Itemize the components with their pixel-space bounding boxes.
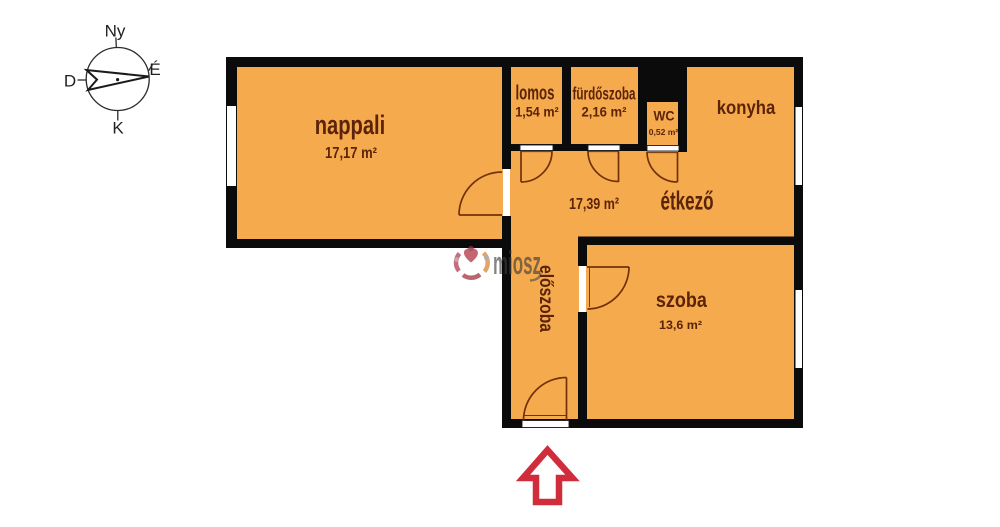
- svg-text:É: É: [149, 60, 160, 79]
- svg-text:0,52 m²: 0,52 m²: [649, 127, 679, 137]
- svg-text:étkező: étkező: [661, 186, 714, 216]
- svg-text:Ny: Ny: [105, 22, 126, 41]
- svg-text:13,6 m²: 13,6 m²: [659, 318, 702, 332]
- svg-text:D: D: [64, 72, 76, 91]
- svg-text:17,17 m²: 17,17 m²: [325, 145, 377, 162]
- svg-text:konyha: konyha: [717, 97, 776, 119]
- svg-text:1,54 m²: 1,54 m²: [515, 105, 559, 120]
- svg-text:fürdőszoba: fürdőszoba: [573, 84, 636, 104]
- svg-text:17,39 m²: 17,39 m²: [569, 196, 619, 213]
- svg-text:nappali: nappali: [315, 110, 386, 140]
- svg-text:miosz: miosz: [493, 245, 541, 281]
- svg-text:K: K: [112, 119, 124, 138]
- svg-text:2,16 m²: 2,16 m²: [582, 105, 627, 120]
- svg-text:szoba: szoba: [656, 288, 708, 312]
- svg-text:WC: WC: [654, 109, 675, 124]
- svg-text:lomos: lomos: [516, 83, 555, 105]
